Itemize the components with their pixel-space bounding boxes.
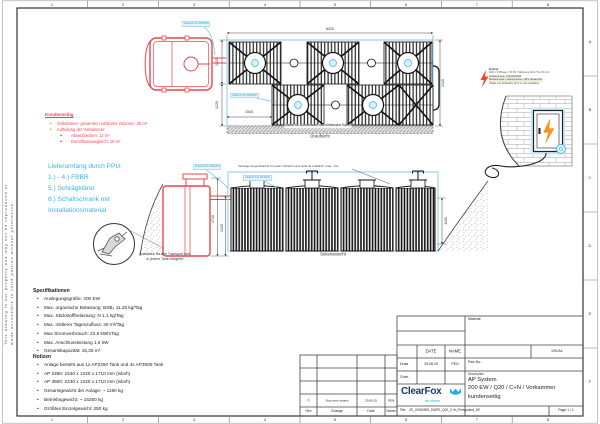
- rev-header-name: Name: [386, 410, 395, 414]
- grid-ref-bottom: 5: [334, 418, 336, 422]
- side-view-drawing: [140, 169, 488, 256]
- grid-ref-top: 2: [122, 2, 124, 6]
- wall-drawing: [481, 70, 573, 178]
- scope-line: 6.) Schaltschrank mit: [48, 196, 110, 203]
- din-format-label: DIN A4: [551, 350, 562, 354]
- dim-outlet-depth: 1160: [445, 217, 449, 225]
- rev-number: 0: [308, 399, 310, 402]
- dim-offset: 1540: [245, 111, 253, 115]
- channel-note: Kanal für Luftschlauch und elektrische K…: [284, 124, 351, 128]
- spec-item: Max. Stickstoffbelastung: N 1,1 kg/Tag: [44, 313, 124, 318]
- rev-name: PEN: [388, 399, 394, 402]
- grid-ref-top: 1: [51, 2, 53, 6]
- drawing-sheet: 1 2 3 4 5 6 7 8 1 2 3 4 5 6 7 8 A B C D …: [0, 0, 600, 424]
- inlet-pipe-label: Zulauf KG DN200: [182, 21, 210, 27]
- grid-ref-right: A: [589, 40, 592, 44]
- rev-header-change: Change: [331, 410, 343, 414]
- spec-item: Auslegungsgröße: 200 EW: [44, 296, 100, 301]
- customer-block-title: Kundenseitig: [45, 113, 74, 118]
- rev-change: Document created: [318, 399, 356, 402]
- copyright-notice: made accessible to third parties without…: [10, 201, 14, 345]
- name-header: NAME: [449, 349, 461, 354]
- copyright-notice: This drawing is our property and may not…: [4, 184, 8, 345]
- material-label: Material: [468, 318, 480, 322]
- grid-ref-top: 7: [476, 2, 478, 6]
- note-item: AP 2250: 1540 x 1220 x 1710 mm (lxbxh): [44, 371, 130, 376]
- note-item: Anlage besteht aus 1x AP2250 Tank und 4x…: [44, 362, 163, 367]
- grid-ref-top: 6: [405, 2, 407, 6]
- grid-ref-right: E: [589, 312, 592, 316]
- clearfox-fox-icon: [449, 387, 462, 397]
- customer-subitem: Absetzbecken: 12 m³: [71, 134, 109, 138]
- note-item: Größtes Einzelgewicht: 250 kg: [44, 406, 108, 411]
- part-no-label: Part-No.:: [468, 361, 482, 365]
- grid-ref-bottom: 2: [122, 418, 124, 422]
- note-item: Gesamtgewicht der Anlage: ~ 1190 kg: [44, 388, 123, 393]
- grid-ref-top: 8: [547, 2, 549, 6]
- grid-ref-bottom: 6: [405, 418, 407, 422]
- notes-title: Notizen: [33, 355, 51, 360]
- grid-ref-bottom: 3: [193, 418, 195, 422]
- side-view-caption: Seitenansicht: [320, 253, 346, 258]
- specs-title: Spezifikationen: [33, 289, 70, 294]
- clearfox-logo-text: ClearFox: [401, 387, 441, 398]
- grid-ref-bottom: 7: [476, 418, 478, 422]
- file-name: ZE_20250909_200PE_Q20_C+N_Prebyclient_DE: [409, 409, 480, 412]
- crane-eye-note: in jedem Tank integriert: [146, 258, 183, 262]
- draw-name: PEN: [451, 363, 458, 367]
- rev-header-date: Date: [367, 410, 374, 414]
- dim-total-length: 6420: [326, 28, 334, 32]
- prechamber-tank-section: [163, 174, 231, 256]
- note-item: Betriebsgewicht: ~ 16250 kg: [44, 397, 103, 402]
- customer-subitem: Durchflussausgleich: 18 m³: [71, 140, 120, 144]
- spec-item: Gesamtkapazität: 16,25 m³: [44, 348, 100, 353]
- grid-ref-right: D: [589, 244, 592, 248]
- spec-item: Max. mittlerer Tageszufluss: 30 m³/Tag: [44, 322, 124, 327]
- outlet-pipe-label: Ablauf KG DN160: [243, 175, 272, 181]
- date-header: DATE: [426, 349, 437, 354]
- scope-line: 1.) - 4.) FBBR: [48, 174, 89, 181]
- spec-item: Max. organische Belastung: BSB₅ 11,25 kg…: [44, 305, 142, 310]
- description-label: Description: [468, 373, 484, 376]
- electric-note: (Kabel und Schläuche für 8 m sind enthal…: [489, 83, 539, 86]
- grid-ref-bottom: 8: [547, 418, 549, 422]
- draw-date: 29.08.25: [424, 363, 438, 367]
- dim-total-width: 2440: [442, 79, 446, 87]
- page-indicator: Page 1 / 1: [558, 409, 573, 413]
- rev-date: 29.08.25: [365, 399, 377, 402]
- grid-ref-top: 3: [193, 2, 195, 6]
- description-line: AP System: [468, 377, 497, 383]
- file-label: File:: [400, 409, 406, 412]
- scope-line: Lieferumfang durch PPU:: [48, 163, 122, 170]
- inlet-pipe-label: Zulauf KG DN200: [193, 164, 221, 170]
- grid-ref-right: F: [589, 380, 591, 384]
- description-line: 200 EW / Q20 / C+N / Vorkammer: [468, 385, 555, 391]
- grid-ref-bottom: 4: [264, 418, 266, 422]
- control-cabinet-icon: [532, 109, 566, 154]
- spec-item: Max. Anschlussleistung 1,6 kW: [44, 340, 109, 345]
- fbbr-tanks-section: [231, 171, 435, 251]
- note-item: AP 3500: 2430 x 1220 x 1710 mm (lxbxh): [44, 379, 130, 384]
- blower-icon: [557, 145, 566, 154]
- check-label: Chek.: [400, 376, 409, 380]
- outlet-pipe-label: Ablauf KG DN160: [230, 93, 259, 99]
- grid-ref-top: 4: [264, 2, 266, 6]
- description-line: kundenseitig: [468, 394, 501, 400]
- electric-bolt-icon: [481, 70, 489, 88]
- customer-item: Vorkammer- gesamtes nutzbares Volumen: 3…: [57, 122, 147, 126]
- dim-row-width-upper: 1220: [216, 58, 220, 66]
- scope-line: Installationsmaterial: [48, 207, 106, 214]
- scope-line: 5.) Schrägklärer: [48, 185, 95, 192]
- dim-inlet-depth: 1420: [221, 224, 225, 232]
- top-view-caption: Draufsicht: [310, 134, 329, 139]
- clearfox-tagline: be clever: [425, 399, 440, 403]
- grid-ref-bottom: 1: [51, 418, 53, 422]
- grid-ref-right: C: [589, 176, 592, 180]
- rev-header-rev: Rev: [305, 410, 311, 414]
- grid-ref-right: B: [589, 108, 592, 112]
- extension-shaft-note: Verlängerungsschächte für jeden Schacht …: [238, 165, 338, 168]
- grid-ref-top: 5: [334, 2, 336, 6]
- top-view-drawing: [145, 27, 443, 134]
- dim-row-width-lower: 1220: [216, 101, 220, 109]
- draw-label: Draw: [400, 363, 408, 367]
- customer-item: Aufteilung der Vorkammer:: [57, 128, 105, 132]
- tank-modules-top-row: [229, 42, 433, 84]
- spec-item: Max Stromverbrauch: 22,5 kWh/Tag: [44, 331, 119, 336]
- dim-tank-height: 1710: [212, 215, 216, 223]
